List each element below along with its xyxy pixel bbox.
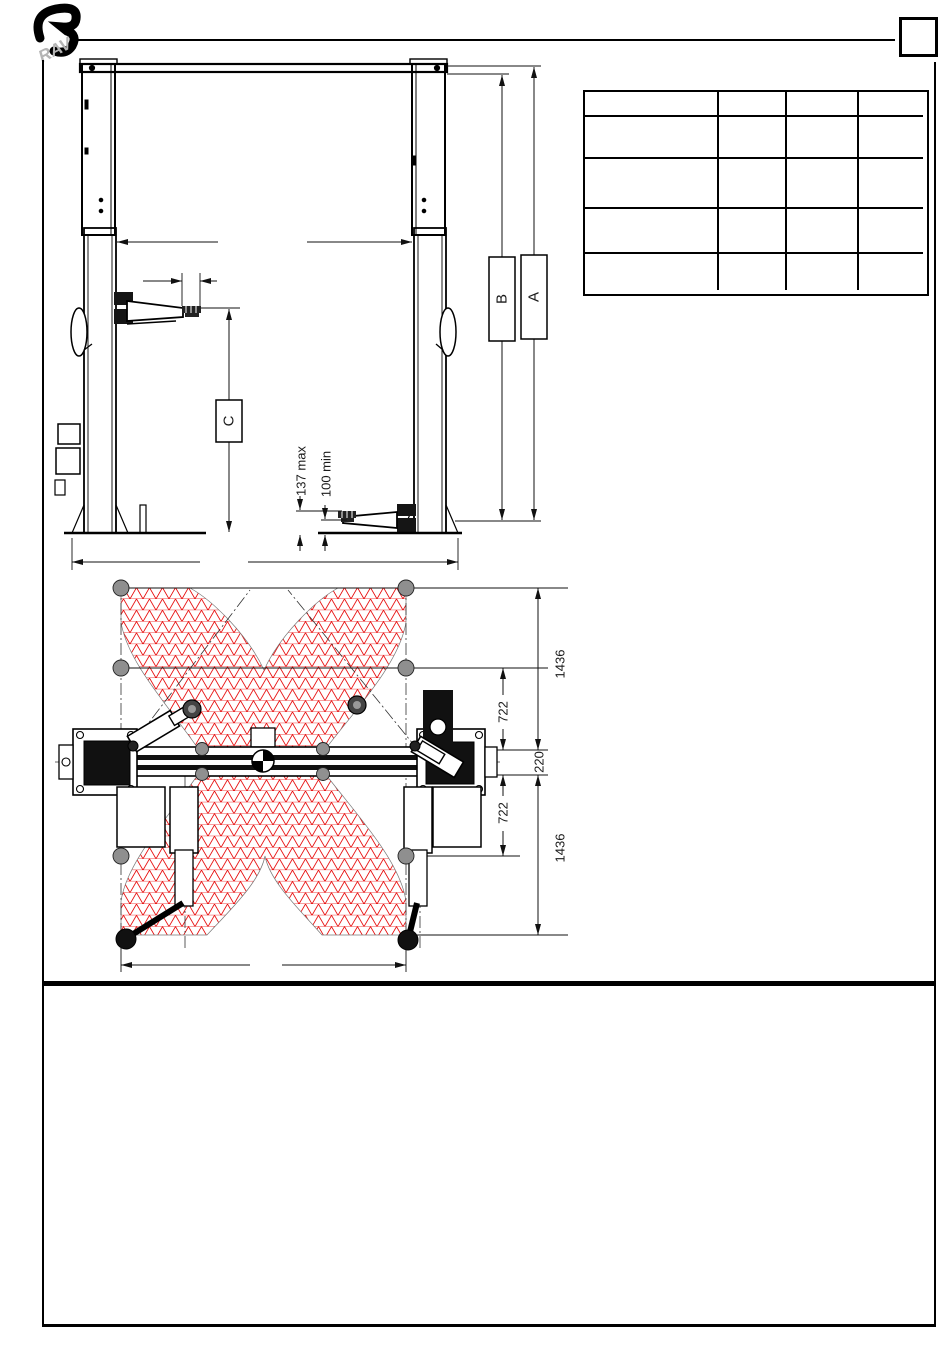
spec-table-cell — [719, 159, 787, 209]
spec-table-cell — [585, 254, 719, 290]
dim-722-top-label: 722 — [496, 701, 511, 723]
spec-table-cell — [719, 117, 787, 159]
spec-table-cell — [719, 209, 787, 254]
lift-arm-raised — [114, 292, 201, 324]
spec-table-cell — [859, 254, 923, 290]
spec-table-cell — [859, 209, 923, 254]
dimension-pad-width — [143, 273, 217, 306]
dimension-b-label: B — [494, 294, 511, 304]
dim-722-bottom-label: 722 — [496, 802, 511, 824]
frame-border-bottom — [42, 1324, 936, 1327]
right-column — [402, 64, 458, 533]
left-column — [72, 64, 146, 533]
spec-table-cell — [787, 92, 859, 117]
motor-unit — [423, 690, 453, 743]
spec-table-cell — [787, 209, 859, 254]
dimension-overall-width — [72, 538, 458, 570]
front-view-drawing: C B A 137 max 100 min — [43, 55, 568, 580]
spec-table-cell — [787, 159, 859, 209]
spec-table-cell — [585, 209, 719, 254]
pad-height-max-label: 137 max — [294, 446, 309, 496]
page-number-box — [899, 17, 938, 57]
dim-1436-bottom-label: 1436 — [553, 834, 568, 863]
spec-table-cell — [859, 92, 923, 117]
dimension-c: C — [201, 308, 242, 532]
dimension-c-label: C — [221, 415, 238, 426]
spec-table-cell — [787, 254, 859, 290]
control-box — [55, 424, 80, 495]
plan-view-drawing: 1436 722 220 722 1436 — [43, 575, 578, 980]
left-post-baseplate — [59, 729, 137, 795]
spec-table-cell — [719, 92, 787, 117]
spec-table-cell — [859, 159, 923, 209]
dimension-b: B — [447, 74, 515, 520]
swing-arm-rear-right — [398, 787, 481, 950]
spec-table — [583, 90, 929, 296]
spec-table-cell — [585, 92, 719, 117]
manual-page: RAV — [0, 0, 950, 1369]
top-crossbar — [80, 59, 447, 72]
spec-table-cell — [859, 117, 923, 159]
dim-1436-top-label: 1436 — [553, 650, 568, 679]
center-of-gravity-icon — [252, 750, 274, 772]
dimension-plan-width — [121, 947, 406, 972]
notes-area — [44, 986, 934, 1324]
dimension-pad-height — [296, 496, 347, 551]
pad-height-min-label: 100 min — [319, 451, 334, 497]
header-rule — [75, 39, 895, 41]
spec-table-cell — [585, 117, 719, 159]
spec-table-cell — [787, 117, 859, 159]
frame-border-right — [934, 62, 936, 1327]
lift-arm-lowered — [338, 504, 416, 533]
dim-220-label: 220 — [532, 751, 547, 773]
dimension-a-label: A — [526, 292, 543, 302]
spec-table-cell — [585, 159, 719, 209]
spec-table-cell — [719, 254, 787, 290]
